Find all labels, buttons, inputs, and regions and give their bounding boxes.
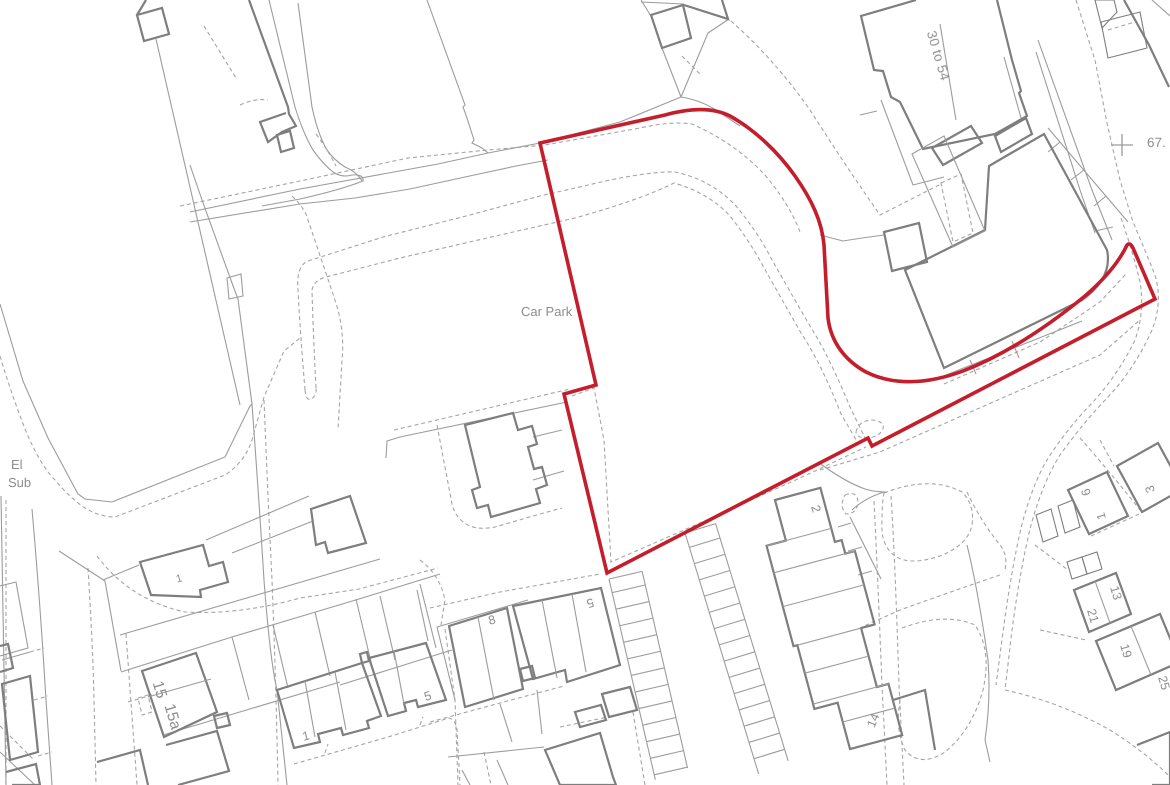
svg-text:67.: 67. bbox=[1147, 135, 1166, 150]
svg-text:El: El bbox=[11, 457, 23, 472]
svg-text:Sub: Sub bbox=[8, 475, 31, 490]
svg-text:Car Park: Car Park bbox=[521, 304, 573, 319]
